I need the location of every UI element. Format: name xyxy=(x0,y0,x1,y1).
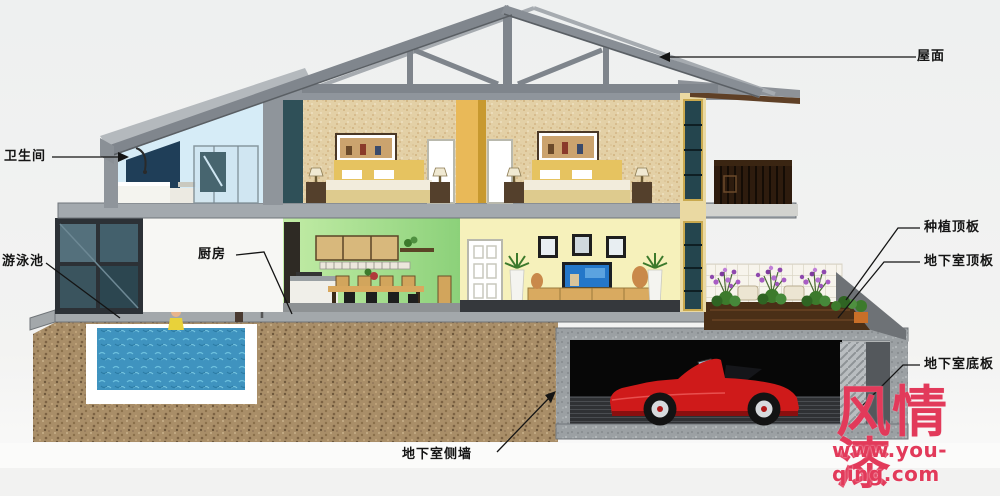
watermark-url: www.you-qing.com xyxy=(832,438,1000,486)
callout-basement-floor-slab: 地下室底板 xyxy=(924,358,994,372)
tv-screen xyxy=(562,262,612,290)
house-section-scene: 屋面 卫生间 游泳池 厨房 种植顶板 地下室顶板 地下室底板 地下室侧墙 风情漆… xyxy=(0,0,1000,468)
callout-kitchen: 厨房 xyxy=(198,248,226,262)
glass-wall xyxy=(55,218,283,314)
balcony-railing xyxy=(714,160,792,204)
callout-swimming-pool: 游泳池 xyxy=(2,255,44,269)
callout-roof: 屋面 xyxy=(917,50,945,64)
kitchen xyxy=(283,218,460,312)
callout-planting-roof-slab: 种植顶板 xyxy=(924,221,980,235)
callout-basement-roof-slab: 地下室顶板 xyxy=(924,255,994,269)
callout-bathroom: 卫生间 xyxy=(4,150,46,164)
shower-enclosure xyxy=(194,146,258,203)
callout-basement-side-wall: 地下室侧墙 xyxy=(402,448,472,462)
living-room xyxy=(460,218,690,312)
